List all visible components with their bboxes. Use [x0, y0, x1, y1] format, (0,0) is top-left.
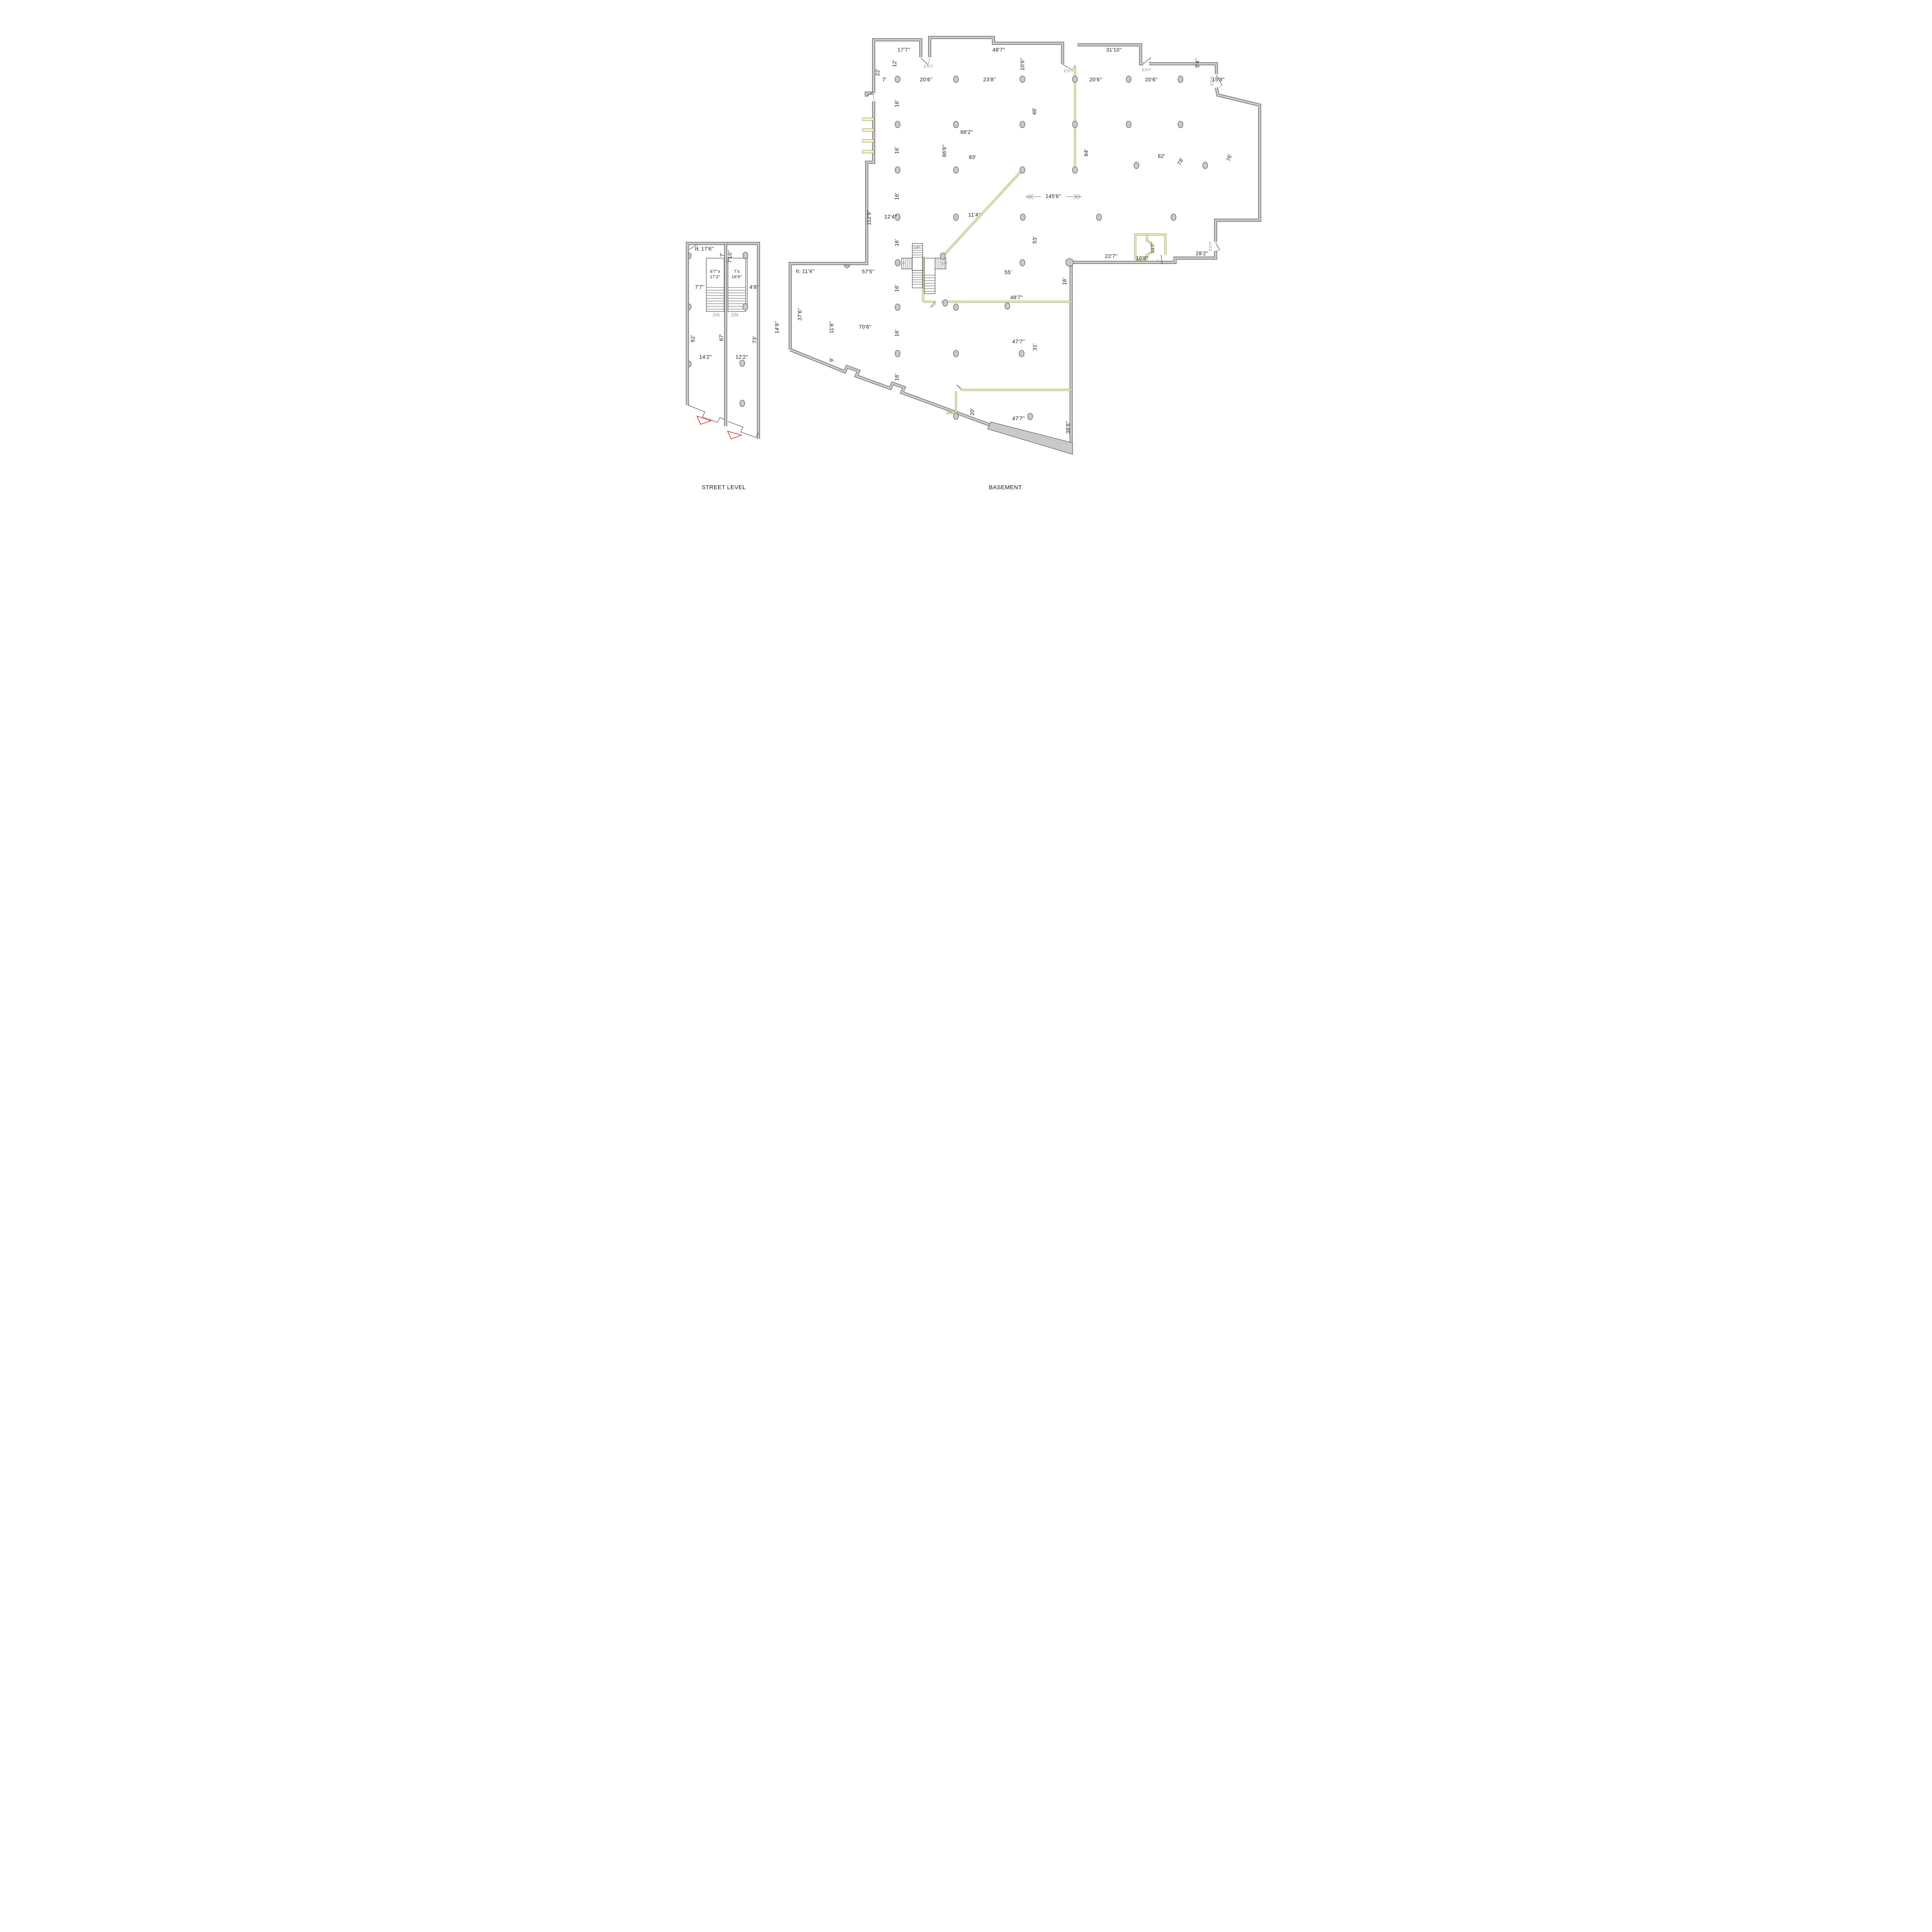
dimension-labels: 17'7''12'EXIT22'7'20'6''23'8''10'6''48'7… [690, 47, 1233, 491]
dim-label: 88'2'' [961, 129, 973, 135]
dn-label: DN [731, 313, 738, 318]
column-dot [743, 304, 748, 310]
dim-label: 10'7'' [1151, 242, 1155, 253]
dim-label: 31' [1032, 344, 1038, 351]
plan-title-street-level: STREET LEVEL [702, 484, 746, 491]
column-dot [740, 360, 745, 367]
column-dot [1178, 121, 1183, 128]
dim-label: 16' [894, 239, 900, 247]
dim-label: 78' [1176, 157, 1185, 166]
dim-label: 20' [969, 408, 975, 416]
plan-title-basement: BASEMENT [989, 484, 1022, 491]
column-dot [1126, 76, 1131, 83]
dim-label: 70'6'' [859, 324, 872, 330]
column-dot [1020, 121, 1025, 128]
up-label: UP [899, 261, 905, 266]
dim-label: 10'8'' [1136, 255, 1149, 261]
column-dot [1005, 303, 1010, 310]
column-dot [954, 304, 959, 311]
dim-label: 11'8'' [829, 321, 835, 333]
exit-label: EXIT [1064, 69, 1074, 73]
dim-label: 5'4'' [1195, 58, 1201, 68]
dim-label: h: 11'4'' [796, 269, 815, 274]
column-dot [954, 350, 959, 357]
dim-label: 6'7''x [710, 269, 721, 274]
dim-label: 20'6'' [1145, 77, 1158, 83]
dim-label: 16' [894, 100, 900, 107]
dim-label: 53' [1032, 236, 1038, 244]
up-label: UP [941, 261, 947, 266]
corner-column [1066, 259, 1073, 266]
dim-label: 16' [894, 285, 900, 292]
thick-street-wall [988, 422, 1073, 454]
dim-label: 7' [883, 77, 887, 83]
column-dot [1134, 162, 1139, 169]
dim-label: h: 17'6'' [695, 246, 714, 252]
column-dot [1019, 350, 1024, 357]
dim-label: 10'6'' [1020, 58, 1026, 71]
dim-label: 7' [719, 253, 725, 257]
floor-plan-canvas: 17'7''12'EXIT22'7'20'6''23'8''10'6''48'7… [663, 0, 1269, 502]
exit-label: EXIT [1208, 241, 1213, 251]
dim-label: 62' [1158, 153, 1165, 159]
column-dot [743, 252, 748, 259]
column-dot [1020, 260, 1025, 266]
dim-label: 67' [719, 334, 724, 341]
dim-label: 7'10'' [727, 250, 733, 263]
column-dot [1126, 121, 1131, 128]
exit-doors [866, 58, 1222, 251]
column-dot [940, 253, 946, 260]
dim-label: 73' [752, 336, 758, 344]
dim-label: 12'4'' [884, 214, 897, 220]
dim-label: 37'6'' [797, 308, 803, 321]
dim-label: 31'10'' [1106, 47, 1122, 53]
dim-label: 7'x [734, 269, 740, 274]
dim-label: 22'7'' [1105, 253, 1118, 259]
floor-plan-page: 17'7''12'EXIT22'7'20'6''23'8''10'6''48'7… [663, 0, 1269, 502]
dim-label: 62' [690, 335, 696, 342]
dim-label: 57'5'' [862, 269, 875, 275]
column-grid-basement [895, 76, 1208, 420]
up-label: UP [914, 245, 920, 250]
exit-label: EXIT [924, 64, 934, 69]
dim-label: 47'7'' [1012, 416, 1025, 422]
dim-label: 7'7'' [695, 284, 705, 290]
dim-label: 17'2'' [710, 275, 720, 279]
column-dot [1171, 214, 1176, 221]
dim-label: 16' [894, 147, 900, 154]
dim-label: 16' [894, 330, 900, 337]
dim-label: 12' [892, 60, 898, 67]
column-dot [1097, 214, 1102, 221]
dim-label: 48' [1032, 108, 1037, 115]
dim-label: 17'7'' [898, 47, 910, 53]
column-dot [740, 400, 745, 407]
column-dot [1073, 121, 1078, 128]
dim-label: 47'7'' [1012, 339, 1025, 345]
dim-label: 16' [1062, 278, 1068, 285]
dim-label: 12'2'' [736, 354, 748, 360]
dim-label: 22' [875, 69, 881, 76]
column-dot [954, 413, 959, 420]
dim-label: 20'6'' [920, 77, 933, 83]
column-dot [895, 167, 900, 173]
corridor-door [957, 385, 961, 390]
dim-label: 86'6'' [942, 145, 947, 157]
column-dot [895, 121, 900, 128]
column-dot [895, 76, 900, 83]
dim-label: 14'2'' [699, 354, 712, 360]
storefront-line [728, 422, 759, 437]
column-dot [895, 350, 900, 357]
storefront-line [687, 405, 725, 422]
dim-label: 23'8'' [983, 77, 996, 83]
column-dot [1028, 413, 1033, 420]
column-dot [954, 167, 959, 173]
column-dot [1020, 214, 1026, 221]
dim-label: 48'7'' [1010, 295, 1023, 301]
column-dot [943, 300, 948, 306]
column-dot [895, 304, 900, 311]
column-dot [1203, 162, 1208, 169]
column-dot [1020, 76, 1025, 83]
basement-outline [790, 37, 1260, 454]
dim-label: 20'6'' [1090, 77, 1102, 83]
entry-arrow [728, 431, 742, 439]
dim-label: 55' [1005, 270, 1012, 276]
dim-label: 28'2'' [1196, 251, 1209, 257]
dim-label: 16' [894, 374, 900, 381]
column-dot [954, 214, 959, 221]
exit-label: EXIT [1142, 68, 1152, 72]
loading-bay-doors [862, 118, 874, 153]
column-dot [1178, 76, 1183, 83]
dim-label: 48'7'' [993, 47, 1005, 53]
dim-label: 16' [894, 193, 900, 200]
overall-width-dimension: 145'6'' [1046, 194, 1061, 199]
column-dot [1020, 167, 1025, 173]
dim-label: 38'8'' [1065, 421, 1071, 434]
dim-label: 11'4'' [968, 212, 981, 218]
demising-walls [923, 65, 1075, 413]
dn-label: DN [713, 313, 719, 318]
dim-label: 16'9'' [731, 275, 742, 279]
column-dot [954, 76, 959, 83]
dim-label: 9' [829, 358, 835, 362]
column-dot [1073, 76, 1078, 83]
dim-label: 83' [969, 155, 976, 160]
dim-label: 112'9'' [866, 210, 872, 225]
column-dot [954, 121, 959, 128]
dim-label: 76' [1225, 153, 1233, 162]
dim-label: 84' [1083, 149, 1089, 156]
dim-label: 14'9'' [774, 321, 780, 334]
column-dot [1073, 167, 1078, 173]
dim-label: 4'8'' [750, 284, 759, 290]
exit-label: EXIT [1210, 76, 1214, 85]
